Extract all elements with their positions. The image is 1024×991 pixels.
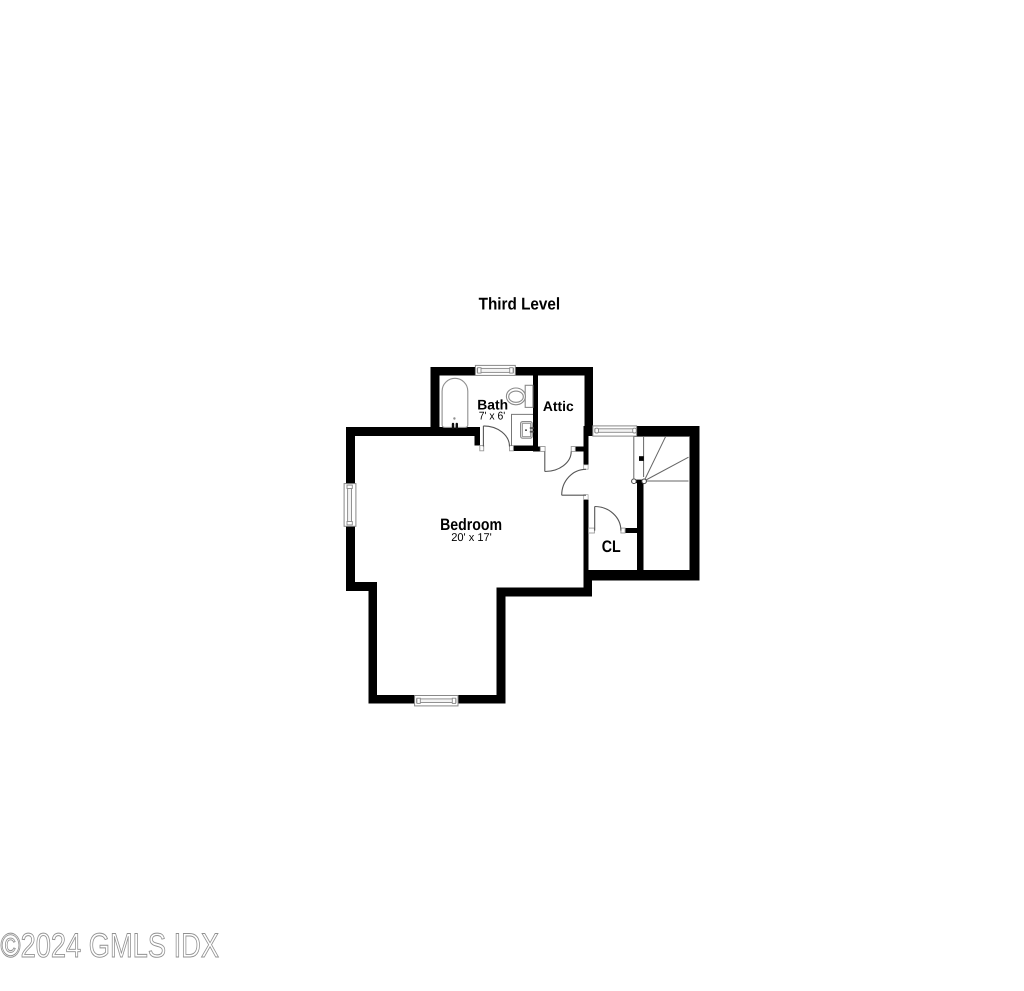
svg-text:Third Level: Third Level (479, 295, 561, 314)
svg-text:CL: CL (602, 537, 621, 556)
svg-text:20' x 17': 20' x 17' (451, 532, 492, 544)
svg-text:©2024 GMLS IDX: ©2024 GMLS IDX (1, 927, 220, 965)
svg-text:Attic: Attic (543, 398, 574, 414)
svg-text:7' x 6': 7' x 6' (479, 411, 506, 423)
